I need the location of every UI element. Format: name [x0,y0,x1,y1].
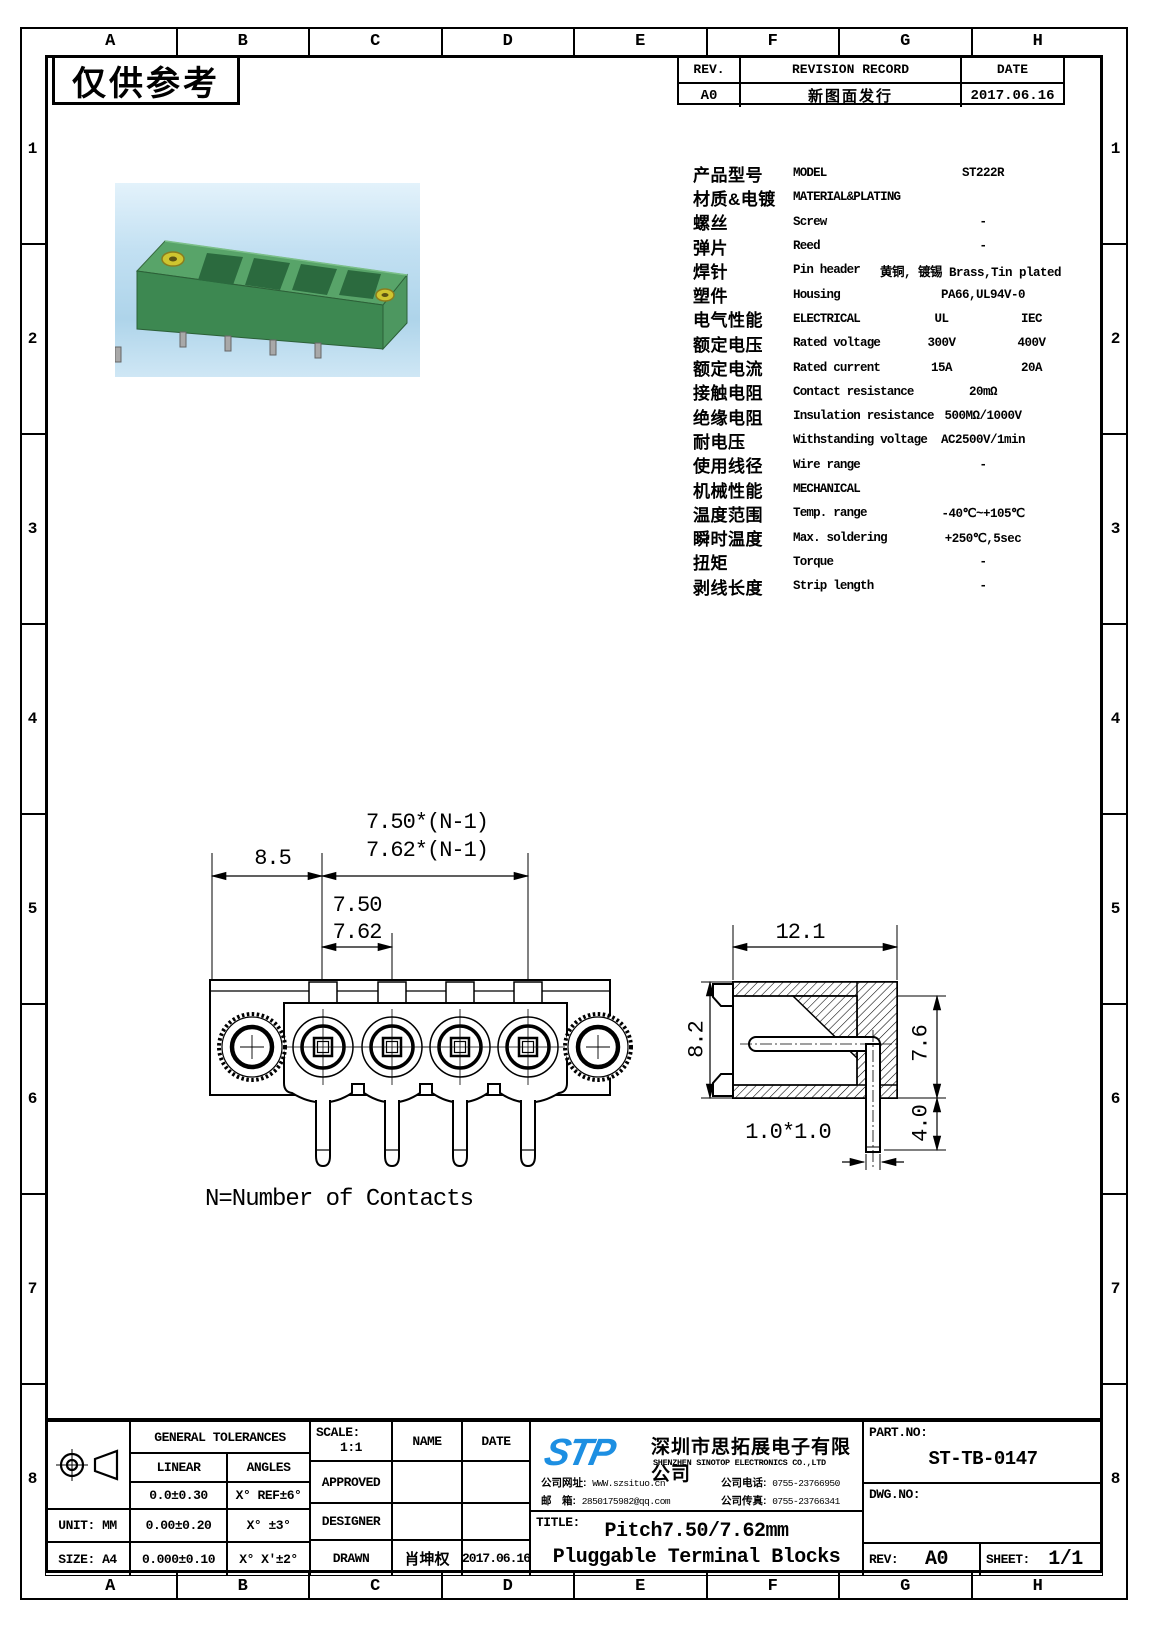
spec-value: 500MΩ/1000V [893,409,1073,423]
spec-label-en: Housing [793,288,893,302]
zone-label: A [45,1572,176,1600]
zone-label: 2 [20,243,45,433]
zone-label: G [838,1572,971,1600]
spec-value: PA66,UL94V-0 [893,288,1073,302]
spec-label-zh: 接触电阻 [693,379,793,404]
email-label: 邮 箱: [541,1495,576,1507]
sheet-value: 1/1 [1048,1548,1083,1571]
zone-label: 7 [1103,1193,1128,1383]
first-angle-projection-icon [55,1445,121,1485]
rev-label: REV: [869,1552,898,1567]
zone-label: D [441,1572,574,1600]
revision-record-header: REVISION RECORD [739,57,960,82]
zone-label: A [45,27,176,55]
approved-label: APPROVED [310,1461,392,1503]
projection-symbol-cell [45,1421,130,1509]
revision-table: REV. REVISION RECORD DATE A0 新图面发行 2017.… [677,55,1065,105]
spec-label-en: Withstanding voltage [793,433,893,447]
spec-value: AC2500V/1min [893,433,1073,447]
drawing-number-cell: DWG.NO: [863,1483,1103,1543]
spec-value-iec: 400V [990,336,1073,350]
spec-label-zh: 剥线长度 [693,574,793,599]
zone-label: 1 [20,55,45,243]
spec-label-en: Rated voltage [793,336,893,350]
dim-pitch-762: 7.62 [324,920,390,945]
spec-label-zh: 焊针 [693,258,793,283]
spec-label-en: Torque [793,555,893,569]
zone-label: H [971,27,1104,55]
spec-row: 额定电流Rated current15A20A [693,355,1073,379]
date-header: DATE [960,57,1063,82]
dim-rear-height: 7.6 [909,1014,934,1074]
stp-logo: STP [540,1432,617,1475]
spec-value: -40℃~+105℃ [893,505,1073,521]
dim-depth: 12.1 [740,920,860,945]
zone-label: 8 [20,1383,45,1573]
part-number-label: PART.NO: [869,1425,927,1440]
angles-header: ANGLES [227,1453,310,1482]
fax-label: 公司传真: [721,1495,767,1507]
designer-label: DESIGNER [310,1503,392,1540]
sheet-cell: SHEET: 1/1 [980,1543,1103,1576]
revision-record-value: 新图面发行 [739,84,960,107]
zone-label: 6 [20,1003,45,1193]
zone-label: 4 [20,623,45,813]
phone-label: 公司电话: [721,1477,767,1489]
scale-cell: SCALE: 1:1 [310,1421,392,1461]
part-number-cell: PART.NO: ST-TB-0147 [863,1421,1103,1483]
linear-header: LINEAR [130,1453,227,1482]
product-photo [115,183,420,377]
spec-label-zh: 产品型号 [693,161,793,186]
tolerance-linear-2: 0.00±0.20 [130,1509,227,1542]
spec-label-zh: 额定电流 [693,355,793,380]
scale-value: 1:1 [340,1440,362,1455]
zone-label: F [706,1572,839,1600]
revision-row: A0 新图面发行 2017.06.16 [679,82,1063,107]
spec-label-zh: 机械性能 [693,477,793,502]
spec-row: 机械性能MECHANICAL [693,477,1073,501]
front-view [210,853,631,1166]
drawn-label: DRAWN [310,1540,392,1576]
name-header: NAME [392,1421,462,1461]
drawn-date: 2017.06.16 [462,1540,530,1576]
spec-value-ul: 15A [893,361,990,375]
rev-cell: REV: A0 [863,1543,980,1576]
sheet-label: SHEET: [986,1552,1030,1567]
approved-date-cell [462,1461,530,1503]
dim-pin-square: 1.0*1.0 [738,1120,838,1145]
spec-label-zh: 瞬时温度 [693,525,793,550]
zone-label: 2 [1103,243,1128,433]
zone-label: 6 [1103,1003,1128,1193]
spec-value-ul: UL [893,312,990,326]
spec-row: 耐电压Withstanding voltageAC2500V/1min [693,428,1073,452]
spec-label-en: Temp. range [793,506,893,520]
spec-label-zh: 额定电压 [693,331,793,356]
size-cell: SIZE: A4 [45,1542,130,1576]
zone-label: 3 [20,433,45,623]
zone-label: D [441,27,574,55]
zone-columns-top: A B C D E F G H [45,27,1103,55]
spec-row: 电气性能ELECTRICALULIEC [693,307,1073,331]
website-label: 公司网址: [541,1477,587,1489]
part-number-value: ST-TB-0147 [928,1448,1037,1470]
spec-value: - [893,458,1073,472]
spec-value-ul: 300V [893,336,990,350]
front-pins [316,1100,535,1166]
spec-value: - [893,215,1073,229]
spec-label-zh: 螺丝 [693,209,793,234]
spec-value: ST222R [893,166,1073,180]
spec-value: +250℃,5sec [893,530,1073,546]
terminal-block-photo-art [115,183,420,377]
spec-row: 使用线径Wire range- [693,453,1073,477]
tolerance-linear-3: 0.000±0.10 [130,1542,227,1576]
spec-label-zh: 材质&电镀 [693,185,793,210]
zone-rows-left: 1 2 3 4 5 6 7 8 [20,55,45,1573]
drawing-title-line2: Pluggable Terminal Blocks [531,1546,862,1569]
spec-label-en: Contact resistance [793,385,893,399]
spec-label-zh: 使用线径 [693,452,793,477]
revision-header-row: REV. REVISION RECORD DATE [679,57,1063,82]
rev-header: REV. [679,57,739,82]
spec-label-en: MECHANICAL [793,482,893,496]
spec-label-zh: 塑件 [693,282,793,307]
spec-label-zh: 电气性能 [693,306,793,331]
zone-columns-bottom: A B C D E F G H [45,1572,1103,1600]
spec-label-en: MATERIAL&PLATING [793,190,893,204]
spec-value: 黄铜, 镀锡 Brass,Tin plated [868,261,1073,280]
spec-label-en: MODEL [793,166,893,180]
spec-row: 温度范围Temp. range-40℃~+105℃ [693,501,1073,525]
company-website: 公司网址: WWW.szsituo.cn [541,1475,665,1490]
spec-label-en: Insulation resistance [793,409,893,423]
spec-row: 焊针Pin header黄铜, 镀锡 Brass,Tin plated [693,258,1073,282]
spec-row: 扭矩Torque- [693,550,1073,574]
spec-row: 塑件HousingPA66,UL94V-0 [693,282,1073,306]
designer-name-cell [392,1503,462,1540]
revision-value: A0 [679,84,739,107]
spec-value: - [893,239,1073,253]
zone-label: G [838,27,971,55]
dim-pitch-total-762: 7.62*(N-1) [352,838,502,863]
dim-body-height: 8.2 [685,1010,710,1070]
company-email: 邮 箱: 2850175982@qq.com [541,1493,670,1508]
reference-only-stamp: 仅供参考 [52,55,240,105]
spec-label-en: Screw [793,215,893,229]
zone-label: 5 [1103,813,1128,1003]
dim-pitch-total-750: 7.50*(N-1) [352,810,502,835]
title-block: UNIT: MM SIZE: A4 GENERAL TOLERANCES LIN… [45,1418,1103,1573]
rev-value: A0 [925,1548,948,1571]
spec-row: 产品型号MODELST222R [693,161,1073,185]
spec-value: - [893,555,1073,569]
spec-row: 弹片Reed- [693,234,1073,258]
spec-label-zh: 扭矩 [693,549,793,574]
zone-rows-right: 1 2 3 4 5 6 7 8 [1103,55,1128,1573]
spec-label-zh: 耐电压 [693,428,793,453]
dimension-drawing [150,770,960,1250]
tolerance-angle-1: X° REF±6° [227,1482,310,1509]
zone-label: 3 [1103,433,1128,623]
date-header: DATE [462,1421,530,1461]
zone-label: 5 [20,813,45,1003]
company-fax: 公司传真: 0755-23766341 [721,1493,840,1508]
scale-label: SCALE: [316,1425,360,1440]
zone-label: E [573,27,706,55]
title-cell: TITLE: Pitch7.50/7.62mm Pluggable Termin… [530,1511,863,1576]
dim-pin-length: 4.0 [909,1094,934,1154]
zone-label: B [176,27,309,55]
tolerance-linear-1: 0.0±0.30 [130,1482,227,1509]
zone-label: 4 [1103,623,1128,813]
spec-row: 剥线长度Strip length- [693,574,1073,598]
spec-table: 产品型号MODELST222R 材质&电镀MATERIAL&PLATING 螺丝… [693,161,1073,598]
company-cell: STP 深圳市思拓展电子有限公司 SHENZHEN SINOTOP ELECTR… [530,1421,863,1511]
general-tolerances-header: GENERAL TOLERANCES [130,1421,310,1453]
spec-value: 20mΩ [893,385,1073,399]
spec-label-en: Rated current [793,361,893,375]
designer-date-cell [462,1503,530,1540]
spec-label-en: Wire range [793,458,893,472]
zone-label: 7 [20,1193,45,1383]
spec-row: 额定电压Rated voltage300V400V [693,331,1073,355]
spec-row: 瞬时温度Max. soldering+250℃,5sec [693,525,1073,549]
contacts-note: N=Number of Contacts [205,1186,473,1213]
spec-label-en: Strip length [793,579,893,593]
spec-row: 螺丝Screw- [693,210,1073,234]
spec-row: 接触电阻Contact resistance20mΩ [693,380,1073,404]
zone-label: F [706,27,839,55]
zone-label: E [573,1572,706,1600]
spec-value-iec: 20A [990,361,1073,375]
company-phone: 公司电话: 0755-23766950 [721,1475,840,1490]
zone-label: C [308,27,441,55]
zone-label: H [971,1572,1104,1600]
zone-label: 8 [1103,1383,1128,1573]
tolerance-angle-2: X° ±3° [227,1509,310,1542]
spec-label-zh: 绝缘电阻 [693,404,793,429]
zone-label: B [176,1572,309,1600]
revision-date-value: 2017.06.16 [960,84,1063,107]
spec-value-iec: IEC [990,312,1073,326]
drawn-name: 肖坤权 [392,1540,462,1576]
spec-value: - [893,579,1073,593]
spec-row: 材质&电镀MATERIAL&PLATING [693,185,1073,209]
company-name-en: SHENZHEN SINOTOP ELECTRONICS CO.,LTD [653,1458,826,1468]
approved-name-cell [392,1461,462,1503]
drawing-title-line1: Pitch7.50/7.62mm [531,1520,862,1543]
spec-label-en: Reed [793,239,893,253]
dim-end-margin: 8.5 [235,846,310,871]
spec-label-zh: 弹片 [693,234,793,259]
unit-cell: UNIT: MM [45,1509,130,1542]
zone-label: C [308,1572,441,1600]
spec-label-en: ELECTRICAL [793,312,893,326]
engineering-drawing-sheet: { "stamp": "仅供参考", "zones": { "cols": ["… [0,0,1150,1626]
spec-label-zh: 温度范围 [693,501,793,526]
tolerance-angle-3: X° X'±2° [227,1542,310,1576]
dim-pitch-750: 7.50 [324,893,390,918]
zone-label: 1 [1103,55,1128,243]
spec-label-en: Max. soldering [793,531,893,545]
drawing-number-label: DWG.NO: [869,1487,920,1502]
spec-row: 绝缘电阻Insulation resistance500MΩ/1000V [693,404,1073,428]
